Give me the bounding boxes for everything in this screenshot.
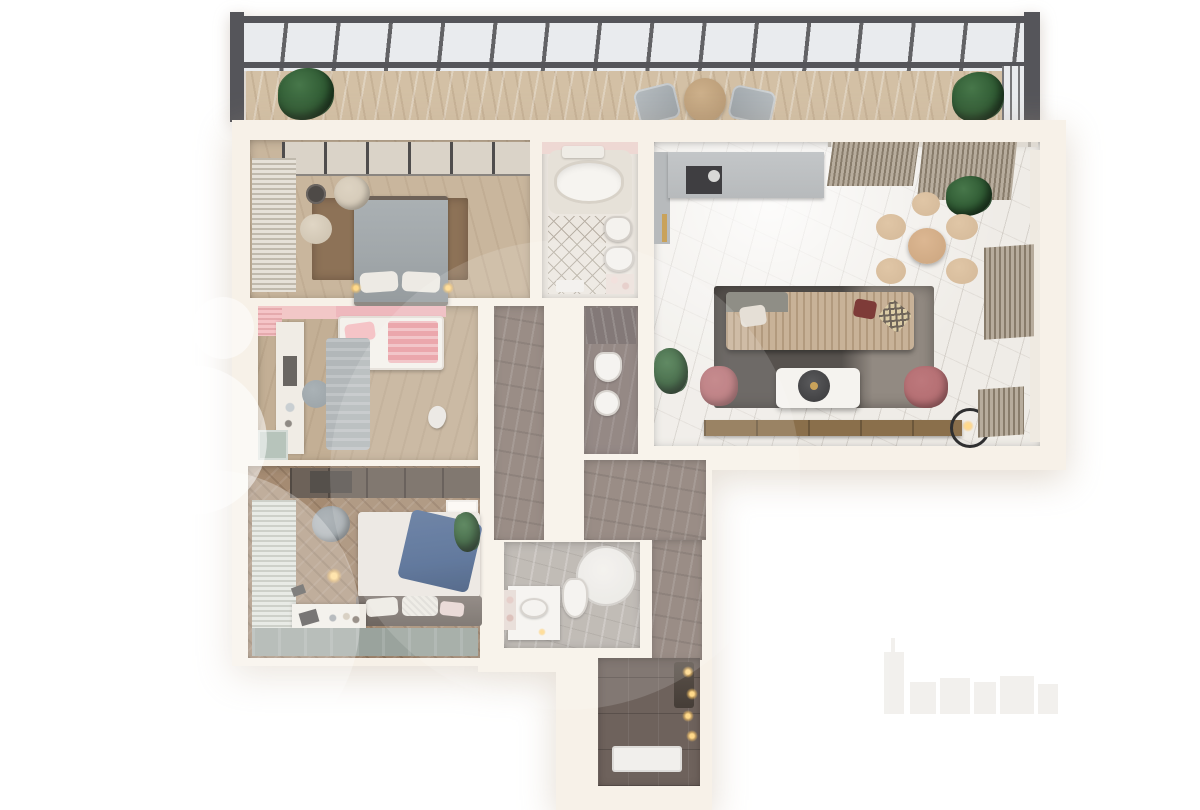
coffee-table-tray (798, 370, 830, 402)
wardrobe-dark (290, 468, 480, 498)
dining-chair (876, 214, 906, 240)
dining-chair (912, 192, 940, 216)
toilet (562, 578, 588, 618)
bedroom-plant (454, 512, 480, 552)
bath-mat (556, 280, 584, 292)
pillow (365, 597, 398, 618)
bedside-lamp (442, 282, 454, 294)
plant-at-hall-door (654, 348, 688, 394)
corridor-vertical (494, 306, 544, 540)
window-curtain (252, 158, 296, 292)
bathtub (554, 160, 624, 204)
curtain-right (984, 244, 1034, 339)
skyline-tower-icon (884, 652, 904, 714)
bathroom-second (504, 542, 640, 648)
mint-cabinet (258, 430, 288, 460)
armchair-rose (700, 366, 738, 406)
skyline-antenna-icon (891, 638, 895, 654)
bedroom-bottom-left (248, 466, 480, 658)
pillow (359, 271, 398, 294)
pillow-pink (439, 601, 464, 617)
dining-chair (946, 214, 978, 240)
wc-toilet (594, 352, 622, 382)
living-kitchen (654, 142, 1040, 446)
side-table (306, 184, 326, 204)
bedside-lamp (350, 282, 362, 294)
wc-vanity (586, 308, 636, 344)
bed-headboard (356, 596, 482, 626)
pouf (300, 214, 332, 244)
bathtub-deck (548, 150, 632, 214)
entry-wall-light (682, 710, 694, 722)
armchair-rose (904, 366, 948, 408)
kids-rug (326, 338, 370, 450)
bedroom-top-left (250, 140, 530, 298)
armchair (334, 176, 370, 210)
watermark-text-block (940, 678, 970, 714)
watermark-text-block (1038, 684, 1058, 714)
washbasin (520, 598, 548, 618)
table-lamp-glow (326, 568, 342, 584)
wc-washbasin (594, 390, 620, 416)
floor-lamp-bulb (962, 420, 974, 432)
pillow (402, 271, 441, 293)
double-bed (354, 196, 448, 306)
cushion-diamond (877, 298, 912, 333)
toilet (604, 216, 632, 242)
wc (584, 306, 638, 454)
bidet (604, 246, 634, 272)
bathroom-shelf (606, 274, 634, 294)
tray-gold-dot (810, 382, 818, 390)
entry-doormat (612, 746, 682, 772)
kitchen-counter (668, 152, 824, 198)
window-curtain (252, 500, 296, 648)
corner-watermark-logo (880, 638, 1070, 718)
wardrobe (282, 142, 530, 176)
kids-blanket-pink (388, 321, 438, 363)
sofa (726, 292, 914, 350)
cushion-white (739, 304, 768, 327)
entry-wall-light (686, 688, 698, 700)
curtain-right (978, 386, 1024, 437)
cushion-red (853, 298, 878, 320)
entry-wall-light (682, 666, 694, 678)
dining-table (908, 228, 946, 264)
dining-chair (946, 258, 978, 284)
pillow (402, 596, 438, 616)
watermark-text-block (910, 682, 936, 714)
floorplan-render (0, 0, 1200, 810)
laptop (299, 609, 320, 626)
toy-horse (424, 403, 449, 430)
corridor-horizontal (584, 460, 706, 540)
dining-chair (876, 258, 906, 284)
bathroom2-decor (504, 590, 516, 630)
kitchen-gold-handle (662, 214, 667, 242)
kids-room (258, 306, 478, 460)
towel (562, 146, 604, 158)
watermark-text-block (1000, 676, 1034, 714)
entry-hall (598, 658, 700, 786)
media-console (704, 420, 962, 436)
bathroom-main (542, 142, 638, 298)
entry-wall-light (686, 730, 698, 742)
wardrobe-tv-panel (310, 471, 352, 493)
desk-items (326, 610, 360, 626)
living-plant-corner (946, 176, 992, 216)
curtain-top (827, 142, 919, 186)
armchair-gray (309, 503, 353, 545)
rug-band (252, 628, 478, 656)
candle (538, 628, 546, 636)
mirror (283, 356, 297, 386)
watermark-text-block (974, 682, 996, 714)
cooktop (686, 166, 722, 194)
kettle (708, 170, 720, 182)
corridor-to-entry (652, 540, 702, 660)
